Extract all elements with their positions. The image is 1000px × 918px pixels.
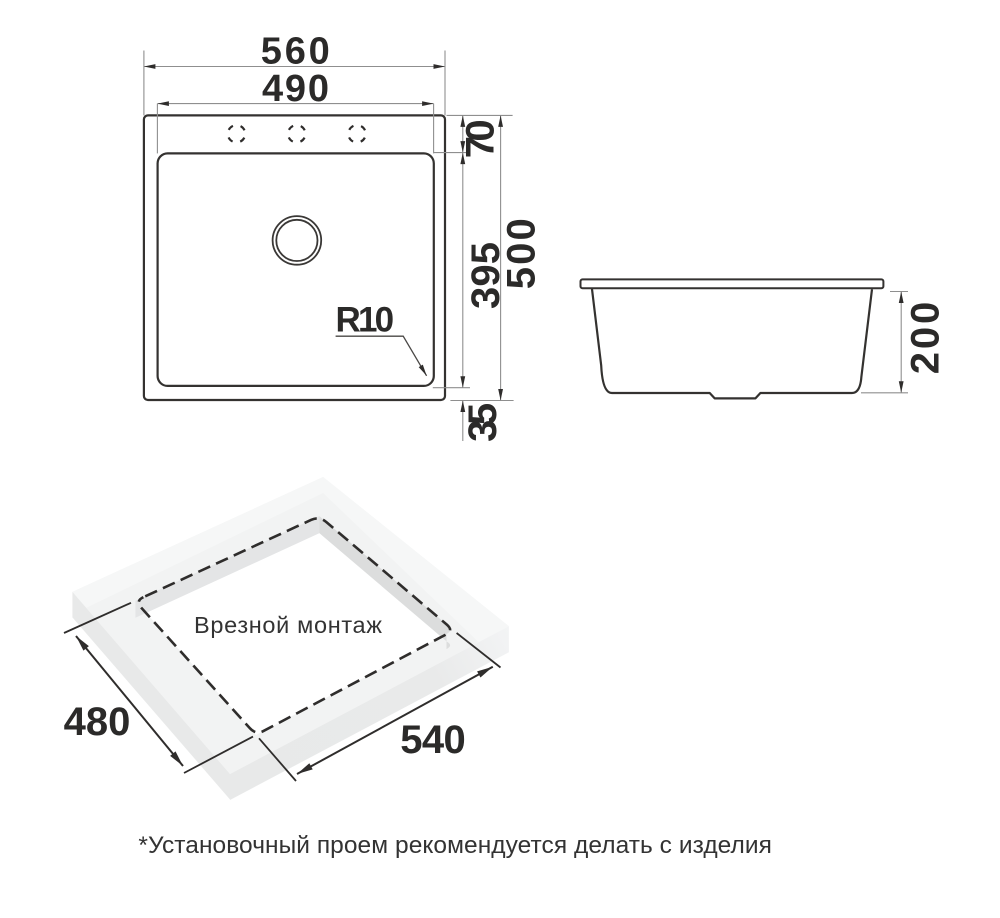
svg-text:540: 540 — [400, 718, 465, 762]
svg-text:*Установочный проем рекомендуе: *Установочный проем рекомендуется делать… — [138, 832, 772, 859]
svg-text:R10: R10 — [336, 301, 395, 340]
svg-text:Врезной монтаж: Врезной монтаж — [194, 612, 382, 638]
svg-text:480: 480 — [64, 700, 131, 744]
svg-text:200: 200 — [903, 302, 947, 375]
svg-text:70: 70 — [459, 119, 503, 158]
svg-text:500: 500 — [499, 218, 543, 289]
svg-text:35: 35 — [461, 403, 505, 442]
